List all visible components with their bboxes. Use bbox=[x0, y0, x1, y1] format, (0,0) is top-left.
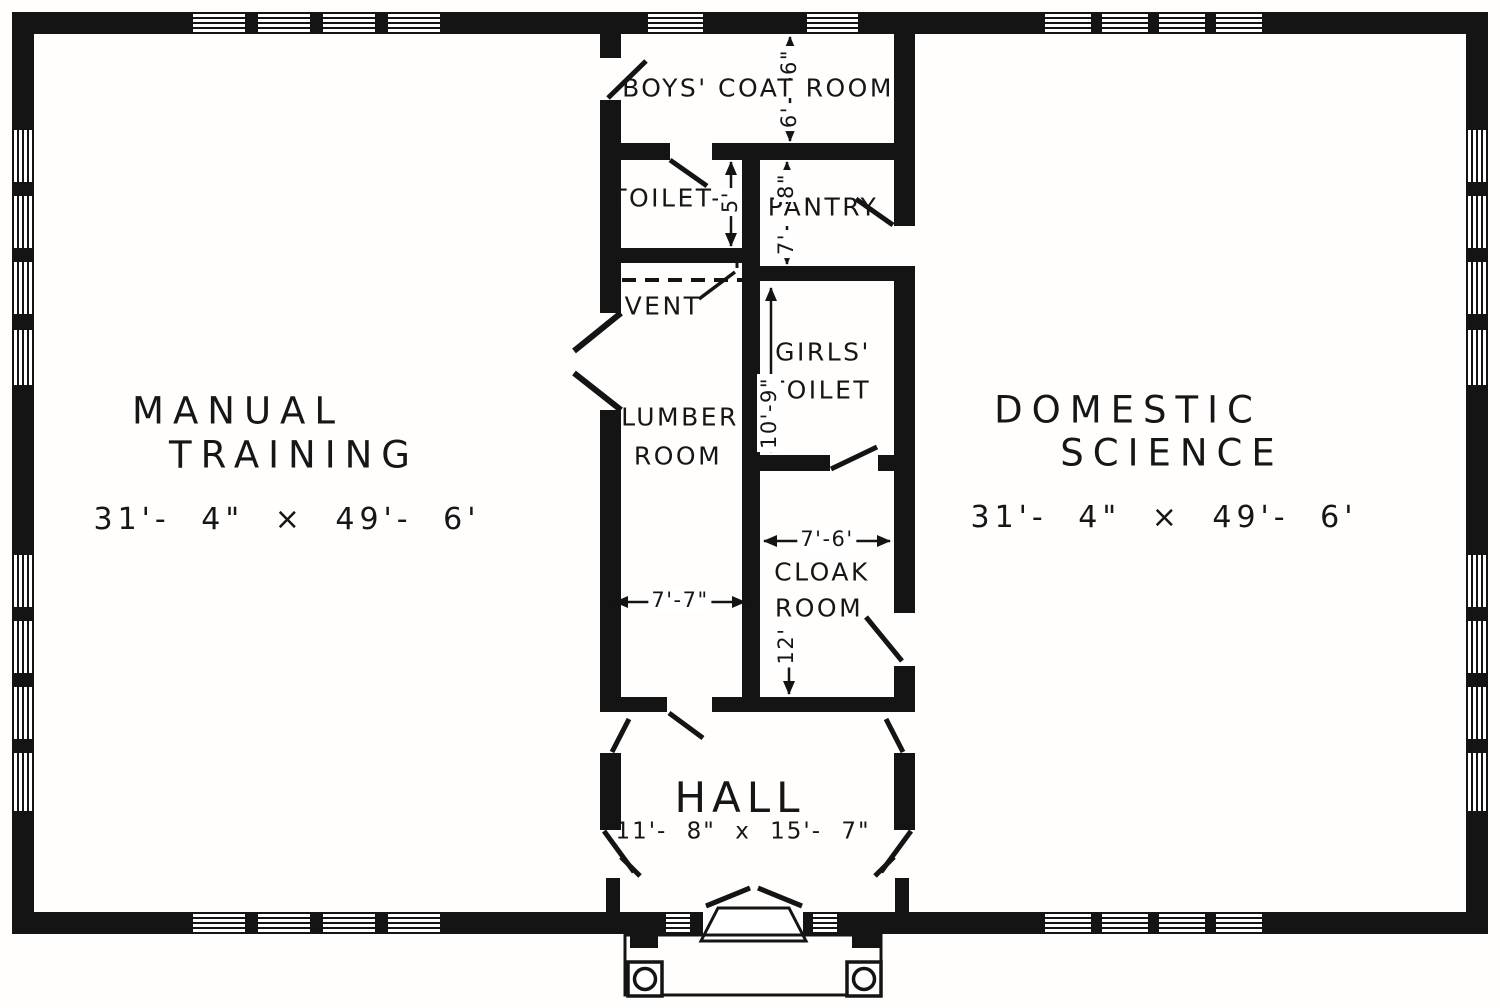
floor-plan: MANUAL TRAINING 31'- 4" × 49'- 6' DOMEST… bbox=[0, 0, 1500, 1008]
room-label-vent: VENT bbox=[625, 294, 702, 319]
room-label-cloak-room-line1: CLOAK bbox=[774, 560, 870, 585]
room-label-manual-training-line2: TRAINING bbox=[169, 437, 419, 474]
room-dims-manual-training: 31'- 4" × 49'- 6' bbox=[94, 505, 481, 535]
porch-pilaster-left bbox=[630, 934, 658, 948]
room-dims-hall: 11'- 8" x 15'- 7" bbox=[615, 821, 870, 844]
room-label-manual-training-line1: MANUAL bbox=[132, 393, 344, 430]
vent-leader-line bbox=[699, 272, 735, 299]
splay-hall-right bbox=[881, 831, 911, 872]
door-leaf-lumber-hall bbox=[669, 713, 703, 738]
door-leaf-girls-toilet bbox=[831, 447, 877, 469]
room-label-lumber-room-line1: LUMBER bbox=[621, 405, 739, 430]
room-label-domestic-science-line2: SCIENCE bbox=[1060, 435, 1284, 472]
room-label-toilet: TOILET- bbox=[611, 186, 723, 211]
door-leaf-hall-left bbox=[612, 719, 629, 752]
splay-lumber-opening-top bbox=[574, 313, 621, 351]
room-label-girls-toilet-line2: TOILET bbox=[769, 378, 871, 403]
room-dims-domestic-science: 31'- 4" × 49'- 6' bbox=[971, 503, 1358, 533]
door-leaf-cloak-room bbox=[866, 617, 902, 661]
room-label-lumber-room-line2: ROOM bbox=[634, 444, 722, 469]
porch-pilaster-right bbox=[852, 934, 880, 948]
dim-pantry-upper: 8" bbox=[774, 170, 798, 202]
dim-lumber-room-width: 7'-7" bbox=[648, 588, 711, 612]
door-leaf-toilet bbox=[670, 160, 707, 186]
room-label-domestic-science-line1: DOMESTIC bbox=[994, 392, 1262, 429]
dim-girls-toilet-depth: 10'-9" bbox=[757, 374, 781, 452]
dim-coatroom-upper: 6" bbox=[777, 46, 801, 78]
entrance-door-leaf-right bbox=[758, 888, 802, 906]
entrance-door-leaf-left bbox=[706, 888, 750, 906]
room-label-girls-toilet-line1: GIRLS' bbox=[775, 340, 871, 365]
dim-pantry-lower: 7' bbox=[774, 230, 798, 258]
room-label-hall: HALL bbox=[674, 777, 805, 819]
room-label-boys-coat-room: BOYS' COAT ROOM bbox=[622, 76, 894, 101]
dim-toilet-depth: 5' bbox=[718, 188, 742, 216]
room-label-cloak-room-line2: ROOM bbox=[775, 596, 863, 621]
dim-cloak-room-depth: 12' bbox=[774, 625, 798, 668]
dim-coatroom-lower: 6' bbox=[777, 103, 801, 131]
splay-lumber-opening-bottom bbox=[574, 373, 621, 410]
door-leaf-hall-right bbox=[886, 719, 903, 752]
dim-cloak-room-width: 7'-6' bbox=[797, 527, 856, 551]
